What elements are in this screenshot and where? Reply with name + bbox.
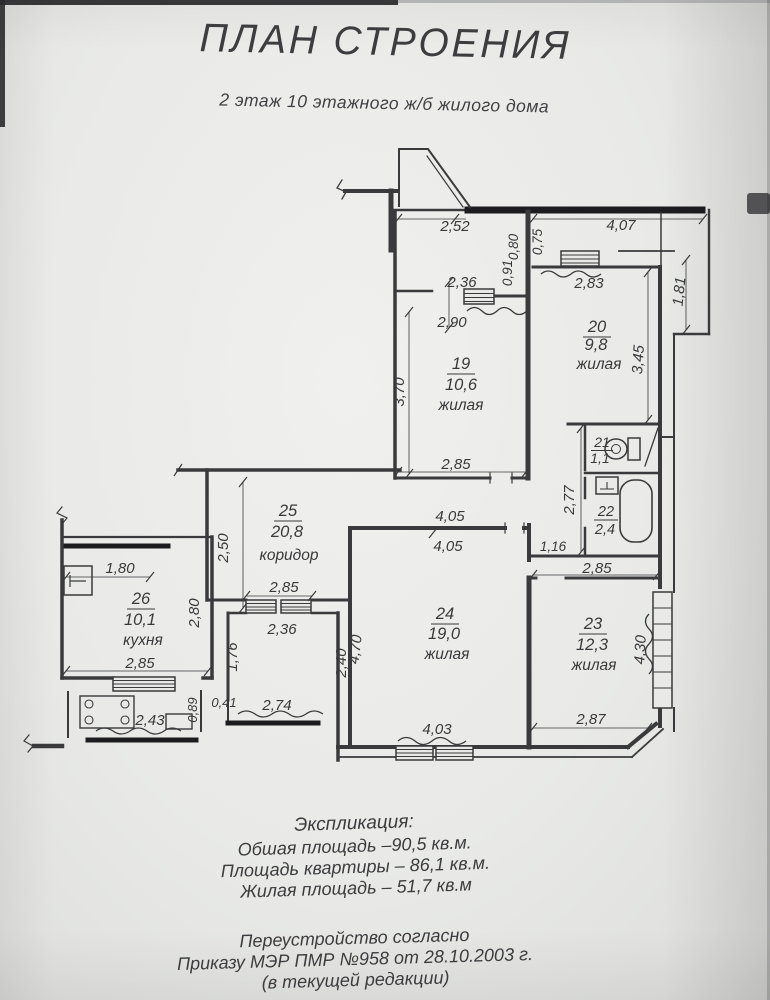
dim-label: 2,36 xyxy=(266,621,297,638)
svg-text:жилая: жилая xyxy=(424,646,470,663)
threshold-r24-a xyxy=(396,746,433,760)
svg-text:19,0: 19,0 xyxy=(428,625,461,643)
threshold-r19 xyxy=(464,289,494,304)
svg-text:25: 25 xyxy=(278,502,298,520)
svg-text:20,8: 20,8 xyxy=(270,523,304,541)
dim-label: 2,36 xyxy=(446,274,477,291)
room-label-22: 22 2,4 xyxy=(594,504,618,538)
window-r24 xyxy=(398,738,466,745)
dim-label: 0,41 xyxy=(211,695,236,710)
threshold-r20 xyxy=(561,251,599,266)
threshold-corridor-b xyxy=(281,600,311,613)
svg-text:10,1: 10,1 xyxy=(124,611,156,629)
dim-label: 4,05 xyxy=(433,538,463,555)
room-label-19: 19 10,6 жилая xyxy=(438,355,484,414)
dim-label: 4,70 xyxy=(345,633,366,665)
room-label-21: 21 1,1 xyxy=(590,434,613,466)
dim-label: 0,80 xyxy=(506,233,521,260)
bathtub-icon xyxy=(620,480,652,542)
threshold-r24-b xyxy=(436,746,473,760)
dim-label: 4,07 xyxy=(606,217,636,234)
break-symbol xyxy=(24,735,33,752)
document-page: ПЛАН СТРОЕНИЯ 2 этаж 10 этажного ж/б жил… xyxy=(0,0,770,1000)
dim-label: 3,45 xyxy=(629,344,648,375)
dim-label: 2,87 xyxy=(575,711,606,728)
svg-text:кухня: кухня xyxy=(123,632,163,649)
svg-text:коридор: коридор xyxy=(260,547,319,564)
dim-label: 0,89 xyxy=(185,697,200,722)
dim-label: 2,50 xyxy=(215,533,232,564)
dim-label: 2,85 xyxy=(440,456,471,473)
svg-text:20: 20 xyxy=(587,318,607,336)
svg-text:22: 22 xyxy=(597,504,614,520)
electrical-panel-icon xyxy=(64,566,92,595)
dim-label: 4,30 xyxy=(631,634,650,665)
dim-label: 2,83 xyxy=(573,275,604,292)
dim-label: 2,85 xyxy=(581,560,612,577)
dim-label: 3,70 xyxy=(391,377,408,407)
room-label-23: 23 12,3 жилая xyxy=(571,615,617,674)
svg-text:10,6: 10,6 xyxy=(445,376,478,394)
dim-label: 2,85 xyxy=(268,579,299,596)
svg-text:1,1: 1,1 xyxy=(590,450,609,466)
svg-text:19: 19 xyxy=(452,355,470,373)
svg-text:24: 24 xyxy=(435,605,454,623)
threshold-kitchen xyxy=(113,677,175,691)
svg-text:12,3: 12,3 xyxy=(576,636,609,654)
table-icon xyxy=(80,696,134,728)
room-label-20: 20 9,8 жилая xyxy=(576,318,622,373)
dim-label: 4,03 xyxy=(422,721,452,738)
room-label-24: 24 19,0 жилая xyxy=(424,605,470,663)
svg-text:жилая: жилая xyxy=(571,657,617,674)
sink-icon xyxy=(596,477,618,494)
dim-label: 2,77 xyxy=(561,485,578,516)
toilet-icon xyxy=(605,438,640,460)
dim-label: 1,80 xyxy=(105,560,135,577)
svg-text:жилая: жилая xyxy=(438,397,484,414)
room-label-25: 25 20,8 коридор xyxy=(260,502,319,564)
dim-label: 1,16 xyxy=(540,539,567,554)
dim-label: 2,74 xyxy=(261,697,291,714)
dim-label: 0,91 xyxy=(500,260,515,286)
room-label-26: 26 10,1 кухня xyxy=(123,590,163,649)
dim-label: 2,90 xyxy=(436,314,467,331)
dim-label: 1,81 xyxy=(670,276,690,307)
svg-text:26: 26 xyxy=(131,590,151,608)
dim-label: 0,75 xyxy=(530,228,545,255)
dim-label: 2,85 xyxy=(124,655,155,672)
svg-text:жилая: жилая xyxy=(576,356,622,373)
dim-label: 2,43 xyxy=(134,712,165,729)
svg-text:9,8: 9,8 xyxy=(585,336,609,354)
dim-label: 2,80 xyxy=(186,598,203,629)
dim-label: 1,76 xyxy=(224,642,241,672)
svg-text:23: 23 xyxy=(583,615,603,633)
window-r19 xyxy=(467,308,527,315)
svg-text:2,4: 2,4 xyxy=(594,522,615,538)
dim-label: 2,52 xyxy=(439,218,470,235)
threshold-corridor-a xyxy=(246,600,276,613)
svg-text:21: 21 xyxy=(593,434,610,450)
dim-label: 4,05 xyxy=(435,508,465,525)
threshold-r23-window xyxy=(653,592,672,708)
